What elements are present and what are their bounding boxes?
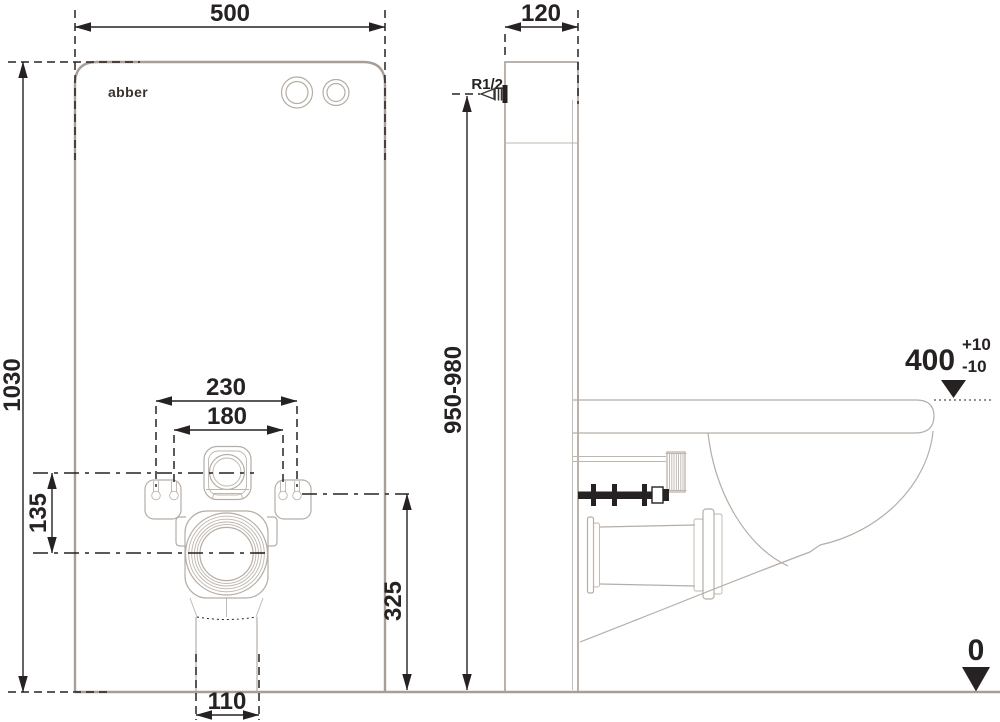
dim-1030-label: 1030 [0,358,26,411]
drain-assembly-front [176,511,277,691]
dim-230-label: 230 [206,374,246,401]
dim-325-label: 325 [380,581,407,621]
level-0-label: 0 [968,634,985,667]
side-panel-outline [505,62,578,692]
spool-flange-left-inner [594,523,600,587]
drain-ring [186,513,268,595]
dim-135: 135 [25,473,52,553]
drain-pipe-walls [196,617,257,691]
drain-ring [200,527,253,580]
spool-flange-left-outer [588,517,594,593]
level-marker-400: 400 +10 -10 [905,335,991,398]
bracket-hole [152,491,161,500]
rod-clamp [612,484,617,506]
level-400-triangle-icon [941,380,966,398]
level-400-tol-plus: +10 [962,335,991,354]
level-0-triangle-icon [962,667,990,692]
bracket-hole [279,491,288,500]
level-400-tol-minus: -10 [962,357,987,376]
spool-flange-right-b [703,509,714,599]
dim-120-label: 120 [521,0,561,27]
rod-tip [663,489,669,501]
dim-1030: 1030 [0,62,140,692]
dim-110: 110 [196,654,259,720]
spool-flange-right-c [714,514,722,594]
side-view: 120 R1/2 950-980 [440,0,992,692]
dim-950-980-label: 950-980 [440,346,467,434]
front-view: abber [0,0,1000,720]
spool-flange-right-a [694,519,703,591]
bowl-outer-profile [580,431,933,642]
drain-ring [192,519,262,589]
drain-ring [195,522,259,586]
dim-500-label: 500 [210,0,250,27]
level-400-label: 400 [905,344,955,377]
installation-drawing: abber [0,0,1000,722]
dim-120: 120 [505,0,578,104]
flush-button-large-inner [286,82,308,104]
r12-wall-plug [503,85,508,103]
flush-buttons [282,77,350,108]
rod-clamp [642,484,647,506]
bracket-slots [154,481,177,492]
spool-body [600,525,695,586]
rod-nut [652,487,663,503]
bracket-hole [293,491,302,500]
mounting-bracket-left [145,480,181,519]
mounting-bracket-right [275,480,311,519]
threaded-fitting-hatch [670,453,684,491]
dim-180-label: 180 [207,403,247,430]
drain-pipe-joint [197,617,256,620]
level-marker-0: 0 [962,634,990,692]
inlet-base-notch [206,490,249,500]
mounting-rod-side [578,484,669,506]
drain-taper [190,598,263,617]
dim-180: 180 [174,403,283,487]
water-connection-r12: R1/2 [452,76,508,103]
rod-clamp [591,484,596,506]
technical-drawing-canvas: abber [0,0,1000,722]
inlet-ring-outer [210,455,245,490]
dim-950-980: 950-980 [440,96,467,690]
inlet-ring-inner [213,458,241,486]
flush-button-small-inner [327,84,345,102]
toilet-bowl-side [573,400,992,642]
bracket-hole [170,491,179,500]
supply-pipe-lines [573,457,666,462]
drain-ring [197,525,256,584]
dim-110-label: 110 [208,688,247,715]
supply-connection-side [573,452,687,492]
drain-spool-side [588,509,723,599]
dim-135-label: 135 [25,493,52,533]
brand-logo: abber [108,84,148,100]
bowl-inner-profile [708,433,788,566]
bowl-rim [573,400,934,433]
